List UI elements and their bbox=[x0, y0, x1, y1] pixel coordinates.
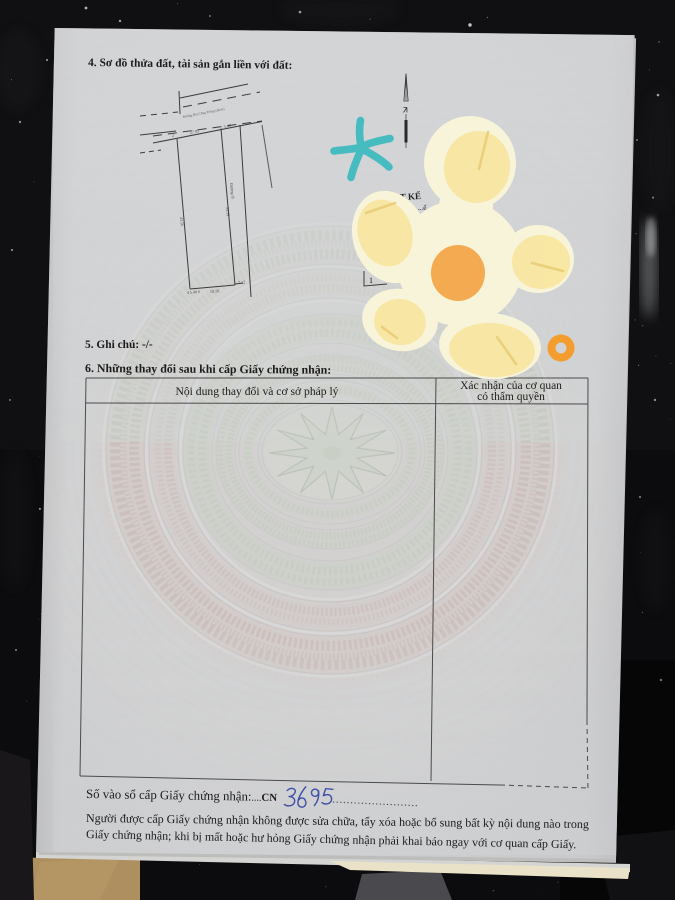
svg-text:Nội dung thay đổi và cơ sở phá: Nội dung thay đổi và cơ sở pháp lý bbox=[176, 385, 339, 398]
svg-text:10.56: 10.56 bbox=[210, 288, 220, 294]
svg-text:5. Ghi chú: -/-: 5. Ghi chú: -/- bbox=[85, 339, 153, 351]
svg-text:2: 2 bbox=[172, 134, 174, 138]
svg-text:43.56: 43.56 bbox=[179, 217, 185, 227]
svg-text:1: 1 bbox=[369, 276, 373, 285]
svg-text:6. Những thay đổi sau khi cấp: 6. Những thay đổi sau khi cấp Giấy chứng… bbox=[85, 361, 331, 377]
svg-text:39.39: 39.39 bbox=[225, 207, 231, 217]
svg-text:7.12: 7.12 bbox=[238, 279, 246, 285]
svg-text:có thẩm quyền: có thẩm quyền bbox=[477, 390, 545, 403]
